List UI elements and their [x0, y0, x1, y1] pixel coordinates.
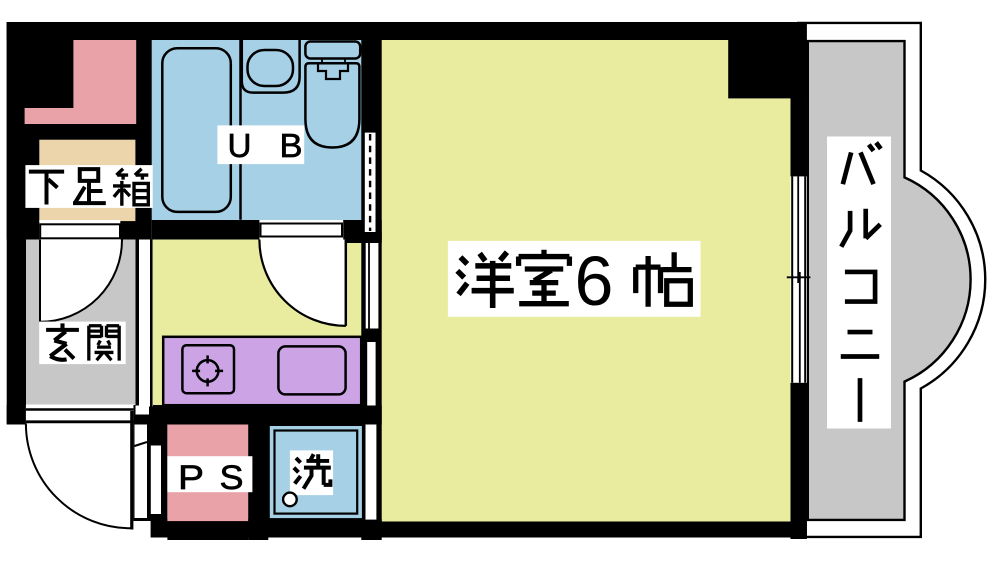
svg-text:B: B — [280, 127, 303, 164]
svg-text:6: 6 — [575, 242, 614, 320]
svg-text:U: U — [228, 127, 252, 164]
svg-text:S: S — [220, 459, 244, 497]
svg-text:P: P — [178, 459, 204, 497]
